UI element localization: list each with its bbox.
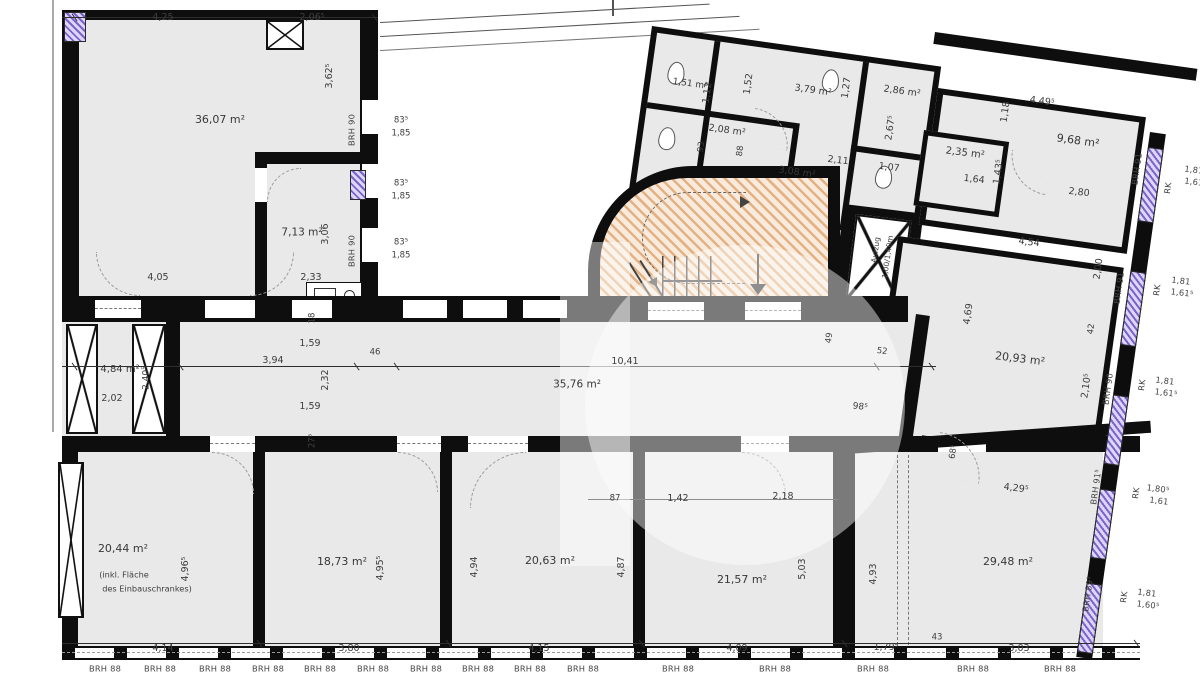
dim-line-bottom xyxy=(62,643,1140,644)
wall-divider xyxy=(833,452,855,648)
dimension-label-38: 1,79⁵ xyxy=(874,643,899,653)
room-area-35-76: 35,76 m² xyxy=(553,379,601,390)
door-gap xyxy=(95,300,141,318)
window-label-29: BRH 88 xyxy=(462,665,494,674)
room-area-20-63: 20,63 m² xyxy=(525,555,575,567)
window-label-35: BRH 88 xyxy=(957,665,989,674)
window-label-11: RK xyxy=(1137,379,1147,392)
wall-topleft-left xyxy=(62,10,79,310)
door-gap xyxy=(741,436,789,452)
dimension-label-59: 93 xyxy=(697,141,707,153)
dimension-label-11: 1,85 xyxy=(392,252,411,261)
room-area-36-07: 36,07 m² xyxy=(195,114,245,126)
dimension-label-17: 1,59 xyxy=(299,402,320,412)
window-label-12: 1,81 xyxy=(1155,376,1175,387)
opening-dash xyxy=(468,443,528,444)
dimension-label-19: 10,41 xyxy=(611,357,638,367)
dimension-label-32: 87 xyxy=(610,495,621,504)
dimension-label-60: 88 xyxy=(736,145,746,157)
dimension-label-23: 2,02 xyxy=(101,394,122,404)
dimension-label-2: 3,62⁵ xyxy=(325,64,335,89)
window-label-3: RK xyxy=(1163,182,1173,195)
window-label-20: 1,81 xyxy=(1137,588,1157,599)
window-label-1: BRH 90 xyxy=(348,235,357,267)
window-label-4: 1,81 xyxy=(1184,165,1200,176)
wall-bath xyxy=(851,145,929,162)
shaft-dash-line xyxy=(897,455,898,645)
window-gap xyxy=(403,300,447,318)
walkline-arrow-icon xyxy=(648,277,657,287)
floor-plan-canvas: 36,07 m²7,13 m²35,76 m²4,84 m²20,44 m²18… xyxy=(0,0,1200,675)
dimension-label-26: 4,14 xyxy=(152,644,173,654)
room-area-29-48: 29,48 m² xyxy=(983,556,1033,568)
dimension-label-7: 1,85 xyxy=(392,130,411,139)
window-label-9: 1,61⁵ xyxy=(1170,287,1194,298)
dimension-label-40: 3,03 xyxy=(1008,644,1029,654)
window-label-2: BRH 91 xyxy=(1130,153,1143,186)
dimension-label-22: 98⁵ xyxy=(852,402,868,413)
dimension-label-30: 4,87 xyxy=(617,556,627,577)
dimension-label-13: 3,94 xyxy=(262,356,283,366)
dimension-label-18: 27⁵ xyxy=(309,434,318,448)
annotation-1: des Einbauschrankes) xyxy=(102,585,192,594)
bottom-facade-windows xyxy=(62,646,1140,660)
window-label-6: BRH 91 xyxy=(1112,272,1125,305)
window-gap xyxy=(463,300,507,318)
toilet-icon xyxy=(657,126,677,151)
dimension-label-5: 2,33 xyxy=(300,273,321,283)
dimension-label-10: 83⁵ xyxy=(394,239,408,248)
dimension-label-42: 68⁵ xyxy=(949,444,960,459)
window-gap xyxy=(362,100,378,134)
room-area-21-57: 21,57 m² xyxy=(717,574,767,586)
door-gap xyxy=(255,168,267,202)
opening-dash xyxy=(397,443,441,444)
room-area-20-44: 20,44 m² xyxy=(98,543,148,555)
down-arrow-shaft xyxy=(757,254,759,286)
dimension-label-0: 4,25 xyxy=(152,13,173,23)
shaft-x-icon xyxy=(66,324,98,434)
room-area-7-13: 7,13 m² xyxy=(281,227,322,238)
door-gap xyxy=(745,302,801,320)
dimension-label-14: 46 xyxy=(370,349,381,358)
room-area-18-73: 18,73 m² xyxy=(317,556,367,568)
dimension-label-4: 4,05 xyxy=(147,273,168,283)
opening-dash xyxy=(648,310,704,311)
room-area-4-84: 4,84 m² xyxy=(100,365,139,376)
window-label-28: BRH 88 xyxy=(410,665,442,674)
dimension-label-15: 2,32 xyxy=(321,369,331,390)
dim-line-corridor xyxy=(62,366,936,367)
dimension-label-24: 2,40⁵ xyxy=(142,366,151,390)
dimension-label-43: 4,54 xyxy=(1018,237,1040,249)
window-label-32: BRH 88 xyxy=(662,665,694,674)
dim-line-top xyxy=(62,17,378,18)
dimension-label-36: 4,09 xyxy=(726,644,747,654)
wall-divider xyxy=(440,452,452,648)
dimension-label-31: 4,15 xyxy=(528,644,549,654)
opening-dash xyxy=(745,310,801,311)
dimension-label-29: 4,94 xyxy=(470,556,480,577)
window-label-25: BRH 88 xyxy=(252,665,284,674)
dimension-label-33: 1,42 xyxy=(667,494,688,504)
dimension-label-25: 4,96⁵ xyxy=(181,557,191,582)
wall-divider xyxy=(633,452,645,648)
down-arrow-icon xyxy=(750,284,766,295)
window-label-5: 1,61 xyxy=(1184,177,1200,188)
window-label-22: BRH 88 xyxy=(89,665,121,674)
door-gap xyxy=(210,436,255,452)
opening-dash xyxy=(741,443,789,444)
wall-topright xyxy=(933,32,1197,81)
site-line xyxy=(612,0,614,16)
wall-topleft-top xyxy=(62,10,378,20)
window-label-24: BRH 88 xyxy=(199,665,231,674)
window-label-31: BRH 88 xyxy=(567,665,599,674)
shaft-dash-line xyxy=(908,455,909,645)
dimension-label-9: 1,85 xyxy=(392,193,411,202)
window-gap xyxy=(523,300,567,318)
window-label-36: BRH 88 xyxy=(1044,665,1076,674)
dimension-label-39: 43 xyxy=(932,634,943,643)
dimension-label-37: 4,93 xyxy=(869,563,879,584)
opening-dash xyxy=(210,443,255,444)
dimension-label-46: 42 xyxy=(1087,323,1097,335)
window-label-34: BRH 88 xyxy=(857,665,889,674)
dim-line-mid xyxy=(588,499,838,500)
wall-inner-horizontal xyxy=(255,152,378,164)
corridor-fill xyxy=(62,322,922,436)
facade-dash-line xyxy=(62,652,1140,653)
window-label-16: 1,80⁵ xyxy=(1146,483,1170,494)
window-gap xyxy=(362,228,378,262)
door-gap xyxy=(648,302,704,320)
dimension-label-20: 49 xyxy=(825,332,835,344)
window-label-19: RK xyxy=(1119,591,1129,604)
dimension-label-1: 2,06⁵ xyxy=(300,13,325,23)
window-label-26: BRH 88 xyxy=(304,665,336,674)
dimension-label-8: 83⁵ xyxy=(394,180,408,189)
window-label-23: BRH 88 xyxy=(144,665,176,674)
window-hatched-icon xyxy=(350,170,366,200)
door-gap xyxy=(397,436,441,452)
dimension-label-27: 4,95⁵ xyxy=(376,556,386,581)
dimension-label-34: 2,18 xyxy=(772,492,793,502)
dimension-label-21: 52 xyxy=(876,347,888,357)
facade-outline-line xyxy=(52,0,54,432)
window-label-27: BRH 88 xyxy=(357,665,389,674)
dimension-label-16: 18 xyxy=(309,313,318,324)
window-gap xyxy=(205,300,255,318)
window-label-7: RK xyxy=(1152,284,1162,297)
annotation-0: (inkl. Fläche xyxy=(99,571,149,580)
window-label-15: RK xyxy=(1131,487,1141,500)
dimension-label-3: 3,06 xyxy=(321,223,331,244)
walkline-arrow-icon xyxy=(740,196,750,208)
dimension-label-28: 3,80 xyxy=(338,644,359,654)
window-label-21: 1,60⁵ xyxy=(1136,599,1160,610)
tall-window-icon xyxy=(58,462,84,618)
stair-walkline xyxy=(642,192,746,284)
window-label-33: BRH 88 xyxy=(759,665,791,674)
dimension-label-6: 83⁵ xyxy=(394,117,408,126)
window-label-17: 1,61 xyxy=(1149,496,1169,507)
opening-dash xyxy=(95,308,141,309)
wall-divider xyxy=(253,452,265,648)
wall-shaft-right xyxy=(166,322,180,436)
window-label-0: BRH 90 xyxy=(348,114,357,146)
dimension-label-12: 1,59 xyxy=(299,339,320,349)
window-label-8: 1,81 xyxy=(1171,276,1191,287)
window-label-30: BRH 88 xyxy=(514,665,546,674)
window-label-13: 1,61⁵ xyxy=(1154,387,1178,398)
dimension-label-35: 5,03 xyxy=(798,558,808,579)
shaft-x-icon xyxy=(266,20,304,50)
door-gap xyxy=(468,436,528,452)
